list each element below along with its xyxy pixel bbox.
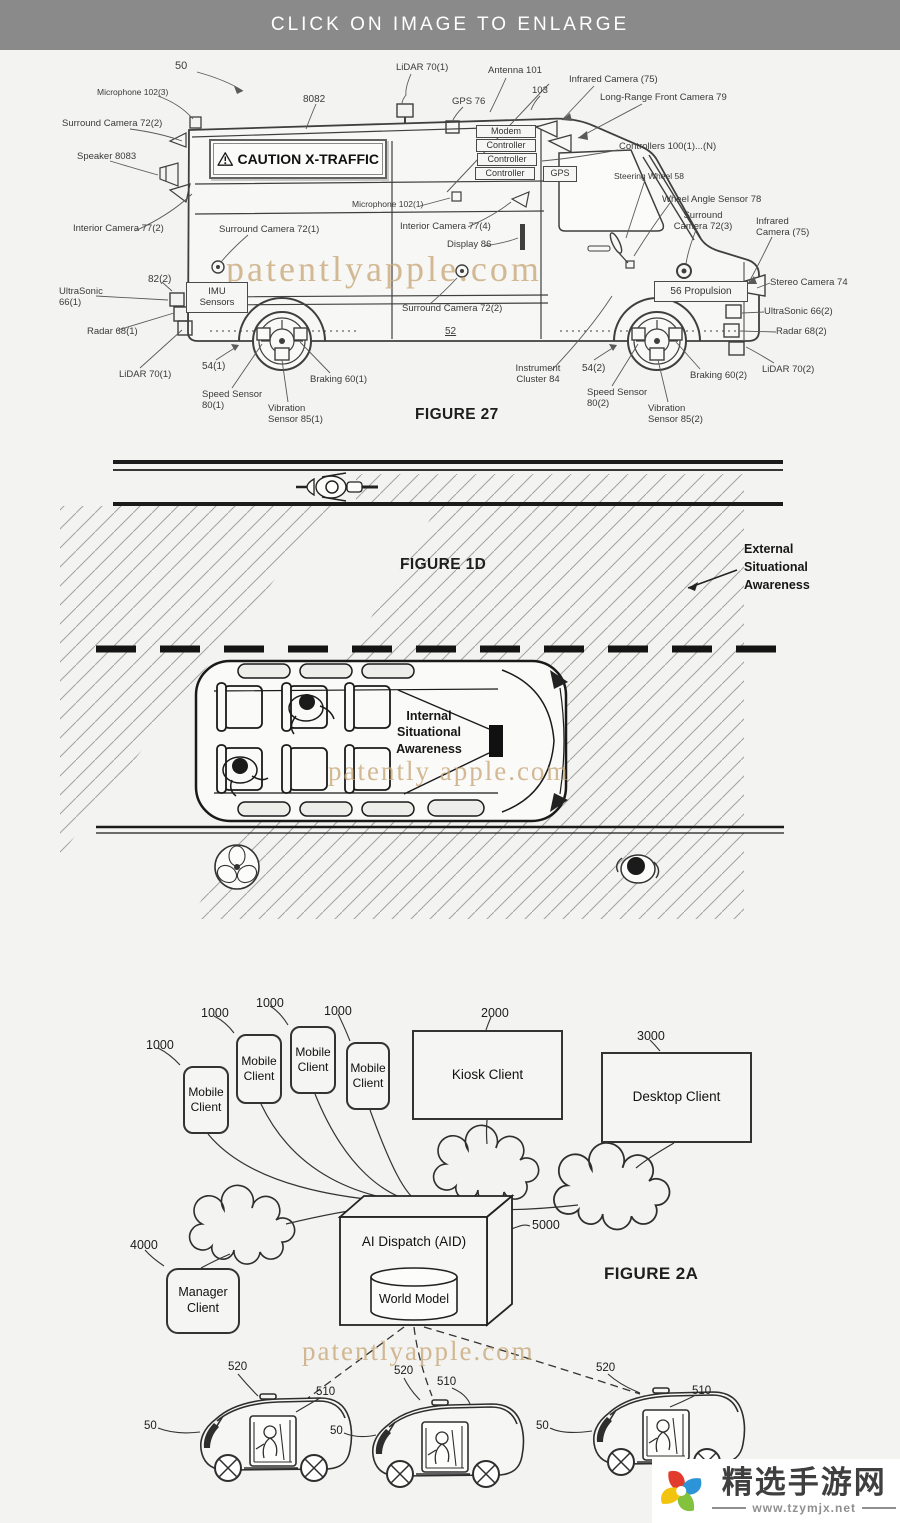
- autonomous-vehicle: [201, 1394, 352, 1481]
- label-surround-camera-72-3: Surround Camera 72(3): [672, 210, 734, 232]
- autonomous-vehicle: [373, 1400, 524, 1487]
- rule-line: [862, 1507, 896, 1509]
- lidar-mast-icon: [397, 104, 413, 117]
- caution-sign-text: CAUTION X-TRAFFIC: [237, 151, 379, 167]
- ref-520: 520: [228, 1361, 247, 1373]
- ultrasonic-1-icon: [170, 293, 184, 306]
- van-top-outline: [196, 661, 566, 821]
- label-radar-68-2: Radar 68(2): [776, 326, 827, 337]
- ref-510: 510: [316, 1386, 335, 1398]
- patent-article-image[interactable]: CLICK ON IMAGE TO ENLARGE: [0, 0, 900, 1523]
- figure-2a-caption: FIGURE 2A: [604, 1264, 698, 1284]
- watermark-fig2a: patentlyapple.com: [302, 1336, 535, 1367]
- ref-510: 510: [437, 1376, 456, 1388]
- label-controllers-100: Controllers 100(1)...(N): [619, 141, 716, 152]
- label-interior-camera-77-2: Interior Camera 77(2): [73, 223, 164, 234]
- ref-1000: 1000: [324, 1004, 352, 1018]
- label-lidar-70-1-top: LiDAR 70(1): [396, 62, 448, 73]
- label-microphone-102-3: Microphone 102(3): [97, 87, 168, 97]
- ai-dispatch-label: AI Dispatch (AID): [342, 1232, 486, 1250]
- site-url: www.tzymjx.net: [752, 1501, 856, 1515]
- label-steering-wheel-58: Steering Wheel 58: [614, 171, 684, 181]
- label-display-86: Display 86: [447, 239, 491, 250]
- external-awareness-label: External Situational Awareness: [744, 540, 810, 594]
- hatch-band: [356, 474, 744, 502]
- ref-50: 50: [144, 1420, 157, 1432]
- ref-label-82-2: 82(2): [148, 274, 171, 286]
- label-gps-76: GPS 76: [452, 96, 485, 107]
- ref-label-103: 103: [532, 85, 548, 96]
- figure-1d-caption: FIGURE 1D: [400, 556, 486, 574]
- ref-50: 50: [330, 1425, 343, 1437]
- ref-2000: 2000: [481, 1006, 509, 1020]
- lidar-2-icon: [729, 342, 744, 355]
- ref-label-8082: 8082: [303, 94, 325, 106]
- label-stereo-camera-74: Stereo Camera 74: [770, 277, 848, 288]
- watermark-fig1d: patently apple.com: [328, 756, 569, 787]
- ref-1000: 1000: [201, 1006, 229, 1020]
- label-antenna-101: Antenna 101: [488, 65, 542, 76]
- label-interior-camera-77-4: Interior Camera 77(4): [400, 221, 491, 232]
- enlarge-banner-text: CLICK ON IMAGE TO ENLARGE: [271, 14, 629, 36]
- van-top-view: [196, 661, 568, 821]
- caution-sign: CAUTION X-TRAFFIC: [209, 139, 387, 179]
- ref-1000: 1000: [146, 1038, 174, 1052]
- rule-line: [712, 1507, 746, 1509]
- controller-box: Controller: [477, 153, 537, 166]
- propulsion-box: 56 Propulsion: [654, 281, 748, 302]
- label-surround-camera-72-2-bottom: Surround Camera 72(2): [402, 303, 502, 314]
- world-model-label: World Model: [371, 1290, 457, 1307]
- figure-27-caption: FIGURE 27: [415, 406, 499, 424]
- controller-box: Controller: [475, 167, 535, 180]
- manager-client-node: Manager Client: [166, 1268, 240, 1334]
- label-lidar-70-1-bottom: LiDAR 70(1): [119, 369, 171, 380]
- label-braking-60-2: Braking 60(2): [690, 370, 747, 381]
- label-surround-camera-72-1: Surround Camera 72(1): [219, 224, 319, 235]
- controller-box: Controller: [476, 139, 536, 152]
- site-name: 精选手游网: [722, 1467, 887, 1500]
- label-ultrasonic-66-2: UltraSonic 66(2): [764, 306, 833, 317]
- label-vibration-sensor-85-1: Vibration Sensor 85(1): [268, 403, 323, 425]
- ref-4000: 4000: [130, 1238, 158, 1252]
- mobile-client-node: Mobile Client: [346, 1042, 390, 1110]
- label-speed-sensor-80-2: Speed Sensor 80(2): [587, 387, 647, 409]
- label-infrared-camera-75-top: Infrared Camera (75): [569, 74, 658, 85]
- interior-camera-icon: [489, 725, 503, 757]
- desktop-client-node: Desktop Client: [601, 1052, 752, 1143]
- ref-label-52: 52: [445, 326, 456, 338]
- site-url-row: www.tzymjx.net: [712, 1501, 896, 1515]
- mobile-client-node: Mobile Client: [290, 1026, 336, 1094]
- network-cloud: [190, 1185, 295, 1264]
- label-radar-68-1: Radar 68(1): [87, 326, 138, 337]
- fig1d-scene: [58, 462, 784, 919]
- ref-50: 50: [536, 1420, 549, 1432]
- label-instrument-cluster-84: Instrument Cluster 84: [510, 363, 566, 385]
- label-ultrasonic-66-1: UltraSonic 66(1): [59, 286, 103, 308]
- site-logo: 精选手游网 www.tzymjx.net: [652, 1459, 900, 1523]
- label-microphone-102-1: Microphone 102(1): [352, 199, 423, 209]
- speaker-horn-icon: [160, 163, 178, 186]
- caution-sign-frame: CAUTION X-TRAFFIC: [213, 143, 383, 175]
- pinwheel-logo-icon: [656, 1465, 706, 1517]
- ref-5000: 5000: [532, 1218, 560, 1232]
- mobile-client-node: Mobile Client: [183, 1066, 229, 1134]
- interior-camera-2-icon: [170, 184, 190, 202]
- label-infrared-camera-75-right: Infrared Camera (75): [756, 216, 809, 238]
- ref-510: 510: [692, 1385, 711, 1397]
- label-surround-camera-72-2-left: Surround Camera 72(2): [62, 118, 162, 129]
- ref-label-50: 50: [175, 60, 187, 73]
- ref-1000: 1000: [256, 996, 284, 1010]
- ref-520: 520: [394, 1365, 413, 1377]
- label-speaker-8083: Speaker 8083: [77, 151, 136, 162]
- ref-520: 520: [596, 1362, 615, 1374]
- gps-box: GPS: [543, 166, 577, 182]
- kiosk-client-node: Kiosk Client: [412, 1030, 563, 1120]
- label-long-range-front-camera-79: Long-Range Front Camera 79: [600, 92, 727, 103]
- ref-label-54-1: 54(1): [202, 361, 225, 373]
- watermark-fig27: patentlyapple.com: [226, 248, 542, 290]
- site-logo-text: 精选手游网 www.tzymjx.net: [712, 1467, 896, 1516]
- label-speed-sensor-80-1: Speed Sensor 80(1): [202, 389, 262, 411]
- mobile-client-node: Mobile Client: [236, 1034, 282, 1104]
- label-vibration-sensor-85-2: Vibration Sensor 85(2): [648, 403, 703, 425]
- imu-sensors-box: IMU Sensors: [186, 282, 248, 313]
- warning-triangle-icon: [217, 147, 233, 171]
- tree-icon: [214, 845, 259, 889]
- label-braking-60-1: Braking 60(1): [310, 374, 367, 385]
- ref-label-54-2: 54(2): [582, 363, 605, 375]
- enlarge-banner: CLICK ON IMAGE TO ENLARGE: [0, 0, 900, 50]
- label-wheel-angle-sensor-78: Wheel Angle Sensor 78: [662, 194, 761, 205]
- internal-awareness-label: Internal Situational Awareness: [388, 708, 470, 757]
- mic-102-3-icon: [190, 117, 201, 128]
- display-86-icon: [520, 224, 525, 250]
- label-lidar-70-2: LiDAR 70(2): [762, 364, 814, 375]
- modem-box: Modem: [476, 125, 536, 138]
- ref-3000: 3000: [637, 1029, 665, 1043]
